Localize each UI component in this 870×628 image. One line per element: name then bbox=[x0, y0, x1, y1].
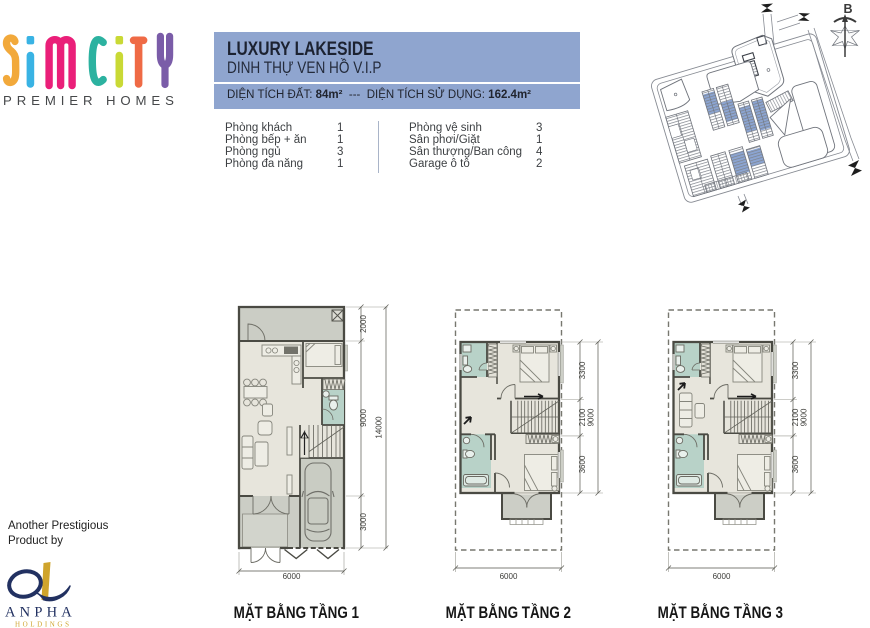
svg-text:9000: 9000 bbox=[359, 409, 368, 427]
svg-text:2000: 2000 bbox=[359, 315, 368, 333]
svg-text:HOLDINGS: HOLDINGS bbox=[15, 621, 72, 628]
svg-text:3600: 3600 bbox=[578, 455, 587, 473]
svg-text:6000: 6000 bbox=[283, 572, 301, 581]
svg-text:6000: 6000 bbox=[712, 572, 730, 581]
svg-text:3600: 3600 bbox=[791, 455, 800, 473]
svg-text:9000: 9000 bbox=[799, 408, 808, 426]
svg-text:6000: 6000 bbox=[500, 572, 518, 581]
svg-text:3300: 3300 bbox=[578, 361, 587, 379]
svg-text:3300: 3300 bbox=[791, 361, 800, 379]
svg-text:3000: 3000 bbox=[359, 513, 368, 531]
svg-text:9000: 9000 bbox=[587, 408, 596, 426]
svg-text:B: B bbox=[844, 2, 853, 16]
svg-text:14000: 14000 bbox=[375, 416, 384, 439]
svg-text:PREMIER HOMES: PREMIER HOMES bbox=[3, 93, 179, 108]
svg-text:ANPHA: ANPHA bbox=[5, 605, 76, 621]
